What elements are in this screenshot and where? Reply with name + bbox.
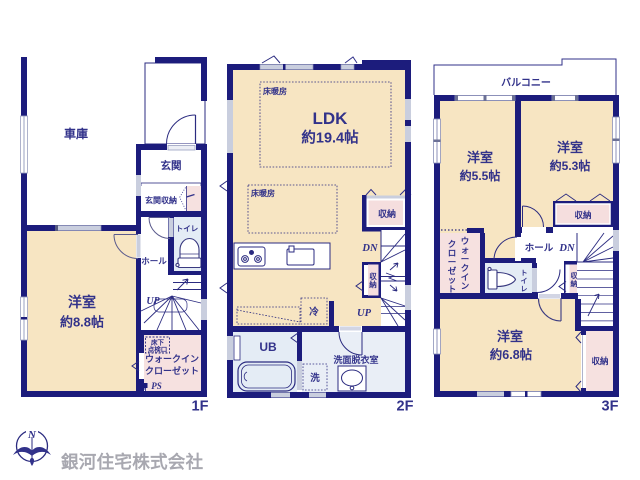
svg-text:2F: 2F: [397, 399, 414, 415]
svg-text:玄関収納: 玄関収納: [145, 195, 177, 205]
svg-text:DN: DN: [558, 243, 575, 254]
svg-text:1F: 1F: [192, 399, 209, 415]
svg-text:床暖房: 床暖房: [263, 86, 287, 96]
svg-text:3F: 3F: [602, 399, 619, 415]
svg-text:約5.5帖: 約5.5帖: [460, 168, 501, 183]
svg-text:イ: イ: [521, 277, 528, 285]
svg-text:バルコニー: バルコニー: [501, 77, 551, 89]
svg-text:洗: 洗: [310, 372, 320, 384]
svg-text:車庫: 車庫: [64, 126, 88, 141]
svg-text:洗面脱衣室: 洗面脱衣室: [333, 354, 378, 365]
svg-text:トイレ: トイレ: [176, 224, 199, 233]
svg-text:ホール: ホール: [525, 243, 554, 254]
svg-text:UB: UB: [259, 340, 277, 354]
svg-text:洋室: 洋室: [68, 294, 96, 310]
svg-text:約19.4帖: 約19.4帖: [301, 129, 359, 147]
svg-text:ト: ト: [448, 284, 457, 294]
svg-text:LDK: LDK: [313, 109, 349, 128]
svg-text:納: 納: [571, 279, 578, 288]
svg-text:ホール: ホール: [141, 256, 167, 266]
svg-text:UP: UP: [357, 308, 372, 319]
svg-text:約8.8帖: 約8.8帖: [60, 315, 104, 330]
svg-text:床暖房: 床暖房: [251, 188, 275, 198]
svg-text:洋室: 洋室: [497, 329, 523, 344]
svg-text:DN: DN: [361, 243, 378, 254]
svg-text:UP: UP: [146, 296, 160, 307]
svg-text:床下: 床下: [151, 338, 165, 347]
svg-text:納: 納: [369, 279, 377, 289]
svg-text:ト: ト: [521, 269, 528, 277]
svg-text:冷: 冷: [309, 306, 319, 318]
svg-text:洋室: 洋室: [557, 140, 583, 155]
svg-text:玄関: 玄関: [161, 159, 182, 172]
svg-text:クローゼット: クローゼット: [145, 365, 199, 376]
svg-text:約5.3帖: 約5.3帖: [550, 158, 591, 173]
svg-text:約6.8帖: 約6.8帖: [490, 347, 533, 362]
svg-text:点検口: 点検口: [148, 345, 168, 354]
svg-text:レ: レ: [521, 285, 528, 293]
svg-text:収納: 収納: [378, 208, 396, 219]
svg-text:ウォークイン: ウォークイン: [145, 354, 199, 364]
svg-text:PS: PS: [151, 381, 162, 391]
svg-text:収納: 収納: [591, 356, 608, 366]
svg-text:ン: ン: [461, 281, 470, 291]
svg-text:収納: 収納: [574, 210, 591, 220]
svg-text:銀河住宅株式会社: 銀河住宅株式会社: [61, 452, 204, 472]
svg-text:洋室: 洋室: [467, 150, 493, 165]
